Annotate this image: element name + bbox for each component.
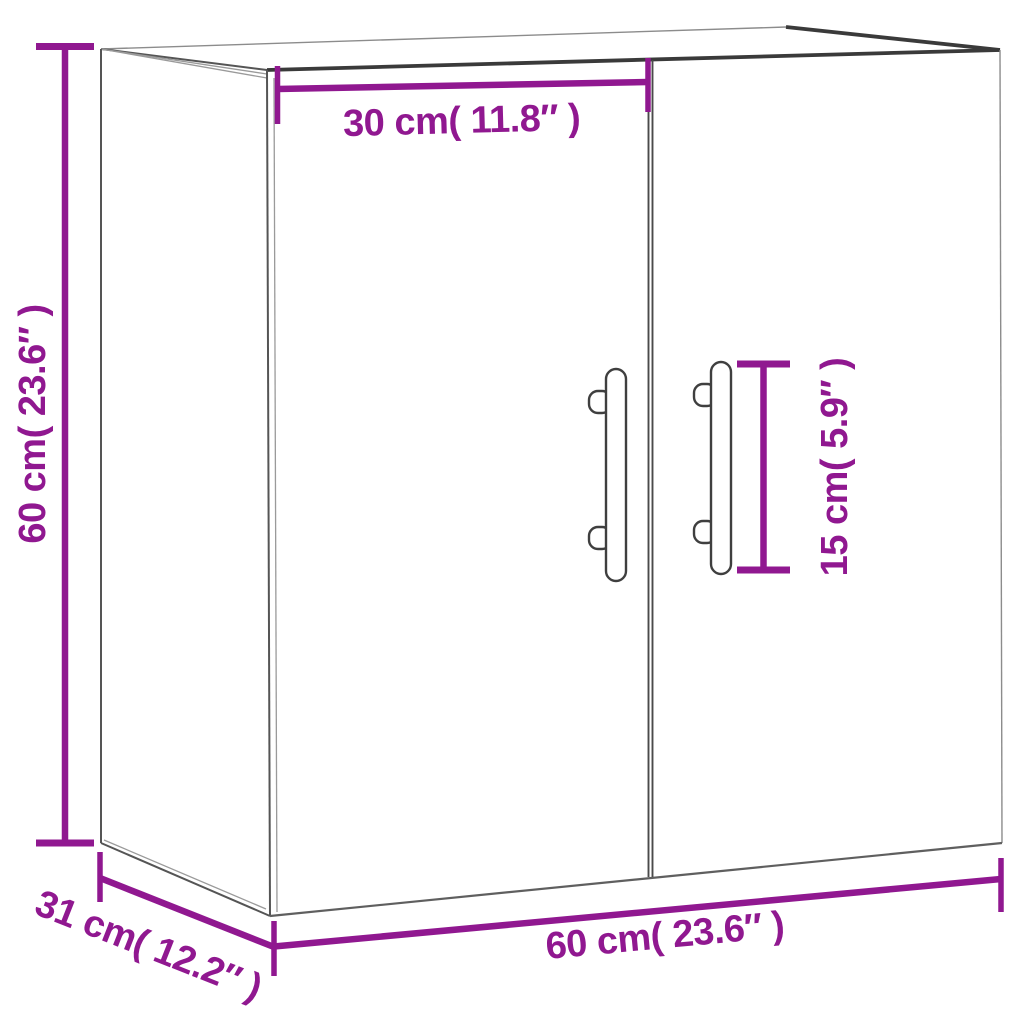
dimension-diagram-svg: 60 cm( 23.6″ ) 30 cm( 11.8″ ) 15 cm( 5.9… [0,0,1024,1024]
cabinet [101,27,1002,916]
left-handle-bar [606,369,626,581]
dim-width-label: 60 cm( 23.6″ ) [544,904,786,968]
dim-height-label: 60 cm( 23.6″ ) [12,304,54,543]
dim-height: 60 cm( 23.6″ ) [12,47,94,844]
right-handle-bar [711,362,731,574]
dim-door-width-label: 30 cm( 11.8″ ) [343,97,581,145]
dimension-diagram: 60 cm( 23.6″ ) 30 cm( 11.8″ ) 15 cm( 5.9… [0,0,1024,1024]
dim-depth-label: 31 cm( 12.2″ ) [29,882,267,1009]
cabinet-side-face [101,49,270,916]
dim-handle-length-label: 15 cm( 5.9″ ) [814,358,856,577]
cabinet-front-face [267,50,1002,916]
